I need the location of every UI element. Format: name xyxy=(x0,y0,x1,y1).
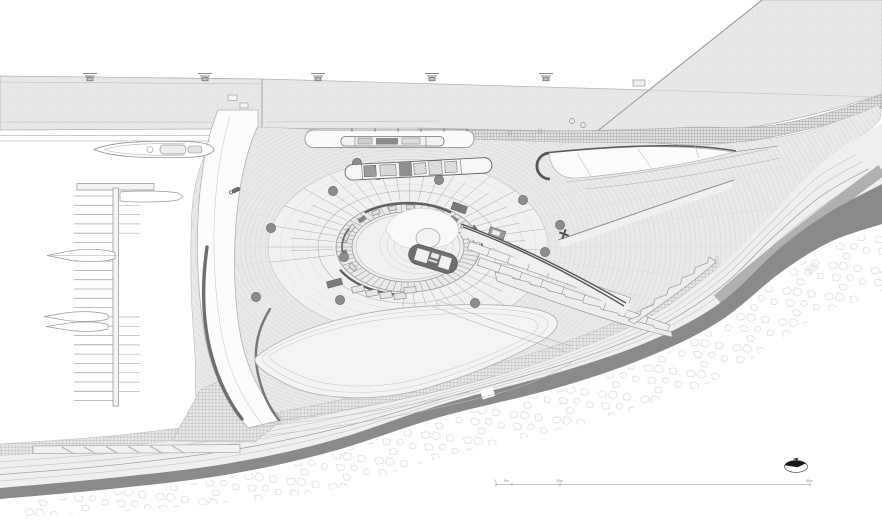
svg-text:5m: 5m xyxy=(504,479,509,483)
svg-text:25m: 25m xyxy=(556,479,563,483)
svg-text:0: 0 xyxy=(494,479,496,483)
svg-text:50m: 50m xyxy=(806,479,813,483)
